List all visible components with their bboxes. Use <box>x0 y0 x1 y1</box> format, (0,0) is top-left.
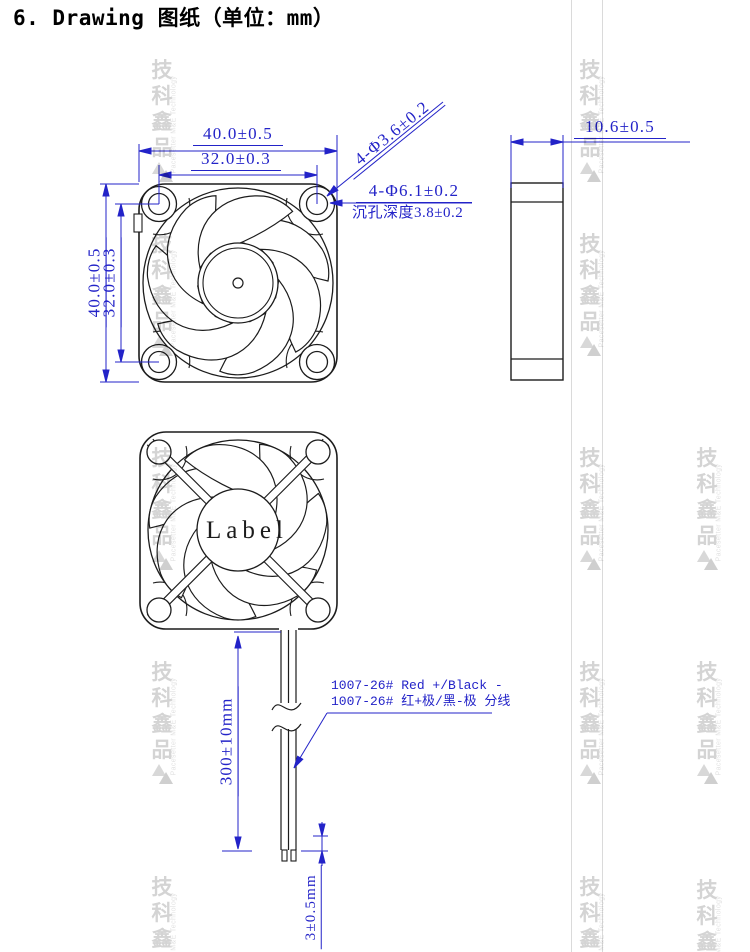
front-hub-center <box>233 278 243 288</box>
front-view-linework <box>129 173 344 386</box>
drawing-page: 6. Drawing 图纸（单位：mm） <box>0 0 750 952</box>
front-width-outer-dim: 40.0±0.5 <box>193 125 283 146</box>
wire-spec-en: 1007-26# Red +/Black - <box>331 679 503 693</box>
page-title: 6. Drawing 图纸（单位：mm） <box>13 2 334 32</box>
wire-spec-cn: 1007-26# 红+极/黑-极 分线 <box>331 695 510 709</box>
front-counterbore-depth: 沉孔深度3.8±0.2 <box>352 205 482 222</box>
lead-wires <box>281 630 296 850</box>
side-thickness-dim: 10.6±0.5 <box>574 118 666 139</box>
front-height-inner-dim: 32.0±0.3 <box>101 237 122 327</box>
front-counterbore-dim: 4-Φ6.1±0.2 <box>356 182 472 203</box>
back-lead-length-dim: 300±10mm <box>218 686 239 796</box>
fan-hub-label: Label <box>206 517 288 545</box>
side-view-linework <box>511 183 563 380</box>
front-width-inner-dim: 32.0±0.3 <box>191 150 281 171</box>
wire-strip-dim: 3±0.5mm <box>303 865 322 949</box>
